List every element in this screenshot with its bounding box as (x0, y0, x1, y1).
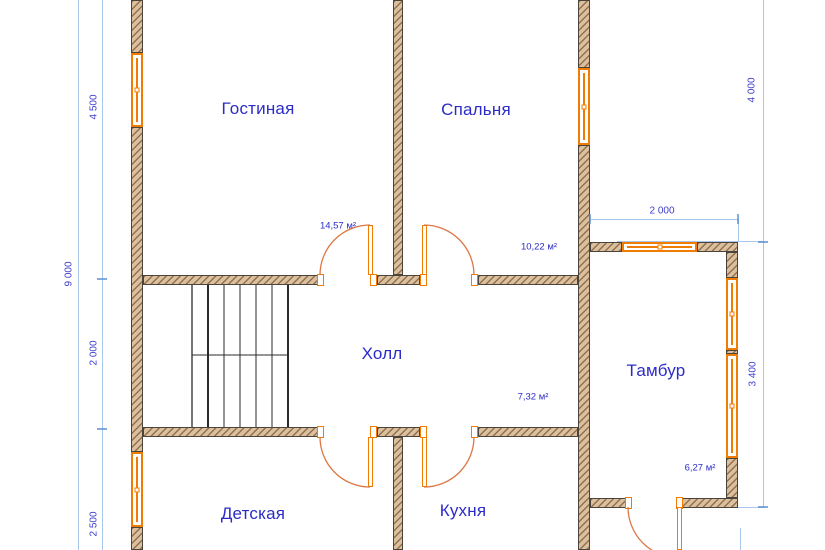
window (131, 452, 143, 527)
extension-line-right (738, 219, 739, 241)
door-swing-arc (424, 225, 474, 275)
area-label-hall: 7,32 м² (518, 392, 549, 403)
wall-segment (377, 275, 420, 285)
dimension-label-left-bottom: 2 500 (89, 511, 100, 536)
door-swing-arc (320, 225, 370, 275)
wall-segment (681, 498, 738, 508)
dimension-line-vestibule-width (590, 219, 738, 220)
room-label-nursery: Детская (221, 504, 285, 524)
door-jamb (317, 274, 324, 286)
window (726, 354, 738, 458)
wall-segment (393, 0, 403, 275)
door-jamb (370, 274, 377, 286)
dimension-label-vestibule-width: 2 000 (649, 206, 674, 217)
wall-segment (697, 242, 738, 252)
room-label-bedroom: Спальня (441, 100, 511, 120)
window (726, 278, 738, 350)
window (622, 242, 697, 252)
dimension-line-left-inner (102, 0, 103, 550)
door-jamb (317, 426, 324, 438)
wall-segment (478, 275, 578, 285)
door-swing-arc (320, 437, 370, 487)
area-label-vestibule: 6,27 м² (685, 463, 716, 474)
door-swing-arc (424, 437, 474, 487)
staircase (192, 285, 288, 427)
door-jamb (471, 274, 478, 286)
room-label-vestibule: Тамбур (627, 361, 686, 381)
wall-segment (478, 427, 578, 437)
room-label-hall: Холл (362, 344, 403, 364)
door-jamb (420, 274, 427, 286)
door-jamb (471, 426, 478, 438)
wall-segment (726, 458, 738, 498)
wall-segment (131, 127, 143, 452)
area-label-bedroom: 10,22 м² (521, 242, 557, 253)
window (578, 68, 590, 145)
room-label-living: Гостиная (222, 99, 295, 119)
extension-line-vestibule-bottom (738, 507, 764, 508)
wall-segment (131, 527, 143, 550)
door-jamb (625, 497, 632, 509)
wall-segment (590, 242, 622, 252)
door-leaf (677, 507, 682, 550)
dimension-label-vestibule-height: 3 400 (748, 361, 759, 386)
wall-segment (726, 252, 738, 278)
wall-segment (393, 437, 403, 550)
door-leaf (368, 437, 373, 487)
wall-segment (131, 0, 143, 53)
dimension-line-bottom-partial (740, 528, 741, 550)
door-leaf (422, 437, 427, 487)
dimension-label-right-top: 4 000 (747, 77, 758, 102)
wall-segment (578, 145, 590, 550)
dimension-label-left-middle: 2 000 (89, 340, 100, 365)
wall-segment (578, 0, 590, 68)
window (131, 53, 143, 127)
area-label-living: 14,57 м² (320, 221, 356, 232)
dimension-label-left-top: 4 500 (89, 94, 100, 119)
door-swing-arc (628, 507, 679, 550)
dimension-line-right (763, 0, 764, 507)
room-label-kitchen: Кухня (440, 501, 487, 521)
door-leaf (422, 225, 427, 275)
dimension-line-left-total (78, 0, 79, 550)
floor-plan: Гостиная Спальня Холл Тамбур Детская Кух… (0, 0, 825, 550)
wall-segment (377, 427, 420, 437)
door-leaf (368, 225, 373, 275)
wall-segment (143, 275, 318, 285)
wall-segment (143, 427, 318, 437)
dimension-label-left-total: 9 000 (64, 261, 75, 286)
wall-segment (590, 498, 628, 508)
